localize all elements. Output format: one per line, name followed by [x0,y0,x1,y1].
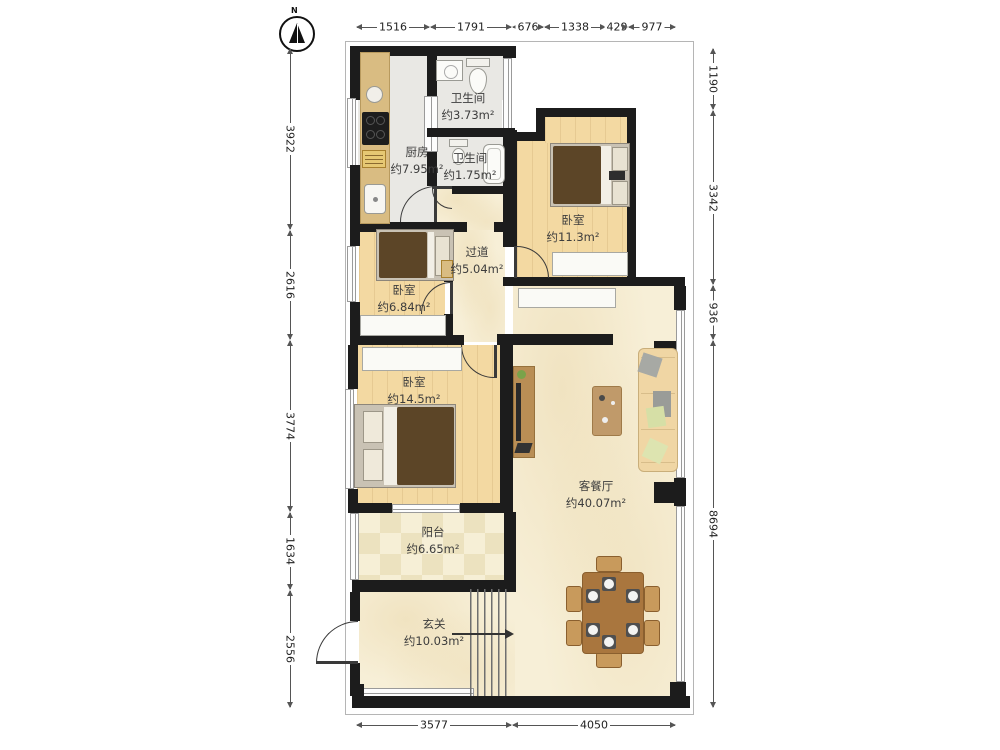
room-label-hallway: 过道 约5.04m² [437,244,517,277]
bedroom-large-door-leaf [494,345,497,378]
coffee-table [592,386,622,436]
pillar [654,482,676,503]
room-area: 约6.84m² [364,299,444,316]
room-label-bedroom-mid: 卧室 约6.84m² [364,282,444,315]
dimension-left-3: 3774 [283,340,297,512]
bedroom-right-floor-notch [545,117,627,143]
window [347,98,356,168]
kitchen-sink [364,184,386,214]
room-name: 玄关 [394,616,474,633]
room-label-bedroom-large: 卧室 约14.5m² [374,374,454,407]
dimension-right-1: 1190 [706,48,720,110]
bed-double-right [550,143,630,207]
plant-icon [517,370,526,379]
room-label-bath-main: 卫生间 约3.73m² [428,90,508,123]
room-area: 约11.3m² [533,229,613,246]
room-area: 约1.75m² [430,167,510,184]
kitchen-round-sink [366,86,383,103]
window [345,389,354,489]
wardrobe-bedroom-right [552,252,628,276]
room-area: 约40.07m² [546,495,646,512]
dimension-left-5: 2556 [283,590,297,708]
cabinet-corridor [518,288,616,308]
dimension-top-2: 1791 [430,20,512,34]
bedroom-mid-door-leaf [450,282,453,314]
bathroom-sink [436,60,463,81]
dining-chair [566,620,582,646]
wall [352,335,464,345]
dimension-top-5: 429 [606,20,628,34]
wall [508,132,545,141]
entry-door-leaf [316,661,358,664]
dining-chair [596,652,622,668]
wall [497,334,613,345]
room-label-living: 客餐厅 约40.07m² [546,478,646,511]
wardrobe-bedroom-large [362,347,462,371]
dimension-left-1: 3922 [283,48,297,230]
room-name: 过道 [437,244,517,261]
dining-table [582,572,644,654]
dimension-right-4: 8694 [706,340,720,708]
dimension-top-6: 977 [628,20,676,34]
tv-cabinet [513,366,535,458]
room-name: 卫生间 [430,150,510,167]
room-name: 卫生间 [428,90,508,107]
wall [674,286,686,310]
north-compass-icon [279,16,315,52]
wall [536,108,636,117]
wall [350,663,360,696]
dimension-bottom-1: 3577 [356,718,512,732]
wall [352,696,690,708]
room-name: 卧室 [364,282,444,299]
dimension-bottom-2: 4050 [512,718,676,732]
window [676,506,685,682]
room-name: 卧室 [533,212,613,229]
tv-icon [516,383,521,441]
room-label-balcony: 阳台 约6.65m² [393,524,473,557]
room-label-bedroom-right: 卧室 约11.3m² [533,212,613,245]
room-area: 约6.65m² [393,541,473,558]
compass-needle-slit [297,24,298,43]
dining-chair [644,586,660,612]
entry-door-arc [316,621,358,663]
toilet-tank [466,58,490,67]
dimension-right-3: 936 [706,285,720,340]
room-name: 阳台 [393,524,473,541]
window [350,513,359,580]
dimension-left-2: 2616 [283,230,297,340]
wall [350,225,360,246]
wall [427,128,515,137]
stairs [470,589,512,696]
dimension-right-2: 3342 [706,110,720,285]
bed-double-large [354,404,456,488]
wall [460,503,513,513]
dimension-top-4: 1338 [544,20,606,34]
window [392,504,460,513]
stove-icon [362,112,389,145]
wall [494,222,516,232]
floor-plan: N [0,0,1000,750]
dining-chair [644,620,660,646]
room-name: 客餐厅 [546,478,646,495]
room-area: 约14.5m² [374,391,454,408]
wall [350,165,360,225]
dimension-top-3: 676 [512,20,544,34]
wall [674,478,686,506]
wall [352,503,392,513]
room-label-bath-small: 卫生间 约1.75m² [430,150,510,183]
wall [503,277,685,286]
wall [452,186,503,194]
wall [348,345,358,389]
dining-chair [566,586,582,612]
speaker-icon [514,443,532,453]
room-name: 卧室 [374,374,454,391]
cabinet-bedroom-mid [360,315,446,336]
room-label-entry: 玄关 约10.03m² [394,616,474,649]
dimension-top-1: 1516 [356,20,430,34]
compass-north-label: N [291,6,298,15]
wall [500,340,513,512]
sofa-pillow-green [642,438,669,465]
wall [503,46,516,58]
wall [350,56,360,100]
room-area: 约3.73m² [428,107,508,124]
sofa [638,348,678,472]
window [347,246,356,302]
dining-chair [596,556,622,572]
dimension-left-4: 1634 [283,512,297,590]
room-area: 约5.04m² [437,261,517,278]
sofa-pillow-green [646,406,667,428]
wall [350,592,360,621]
room-area: 约10.03m² [394,633,474,650]
wall [504,512,516,592]
